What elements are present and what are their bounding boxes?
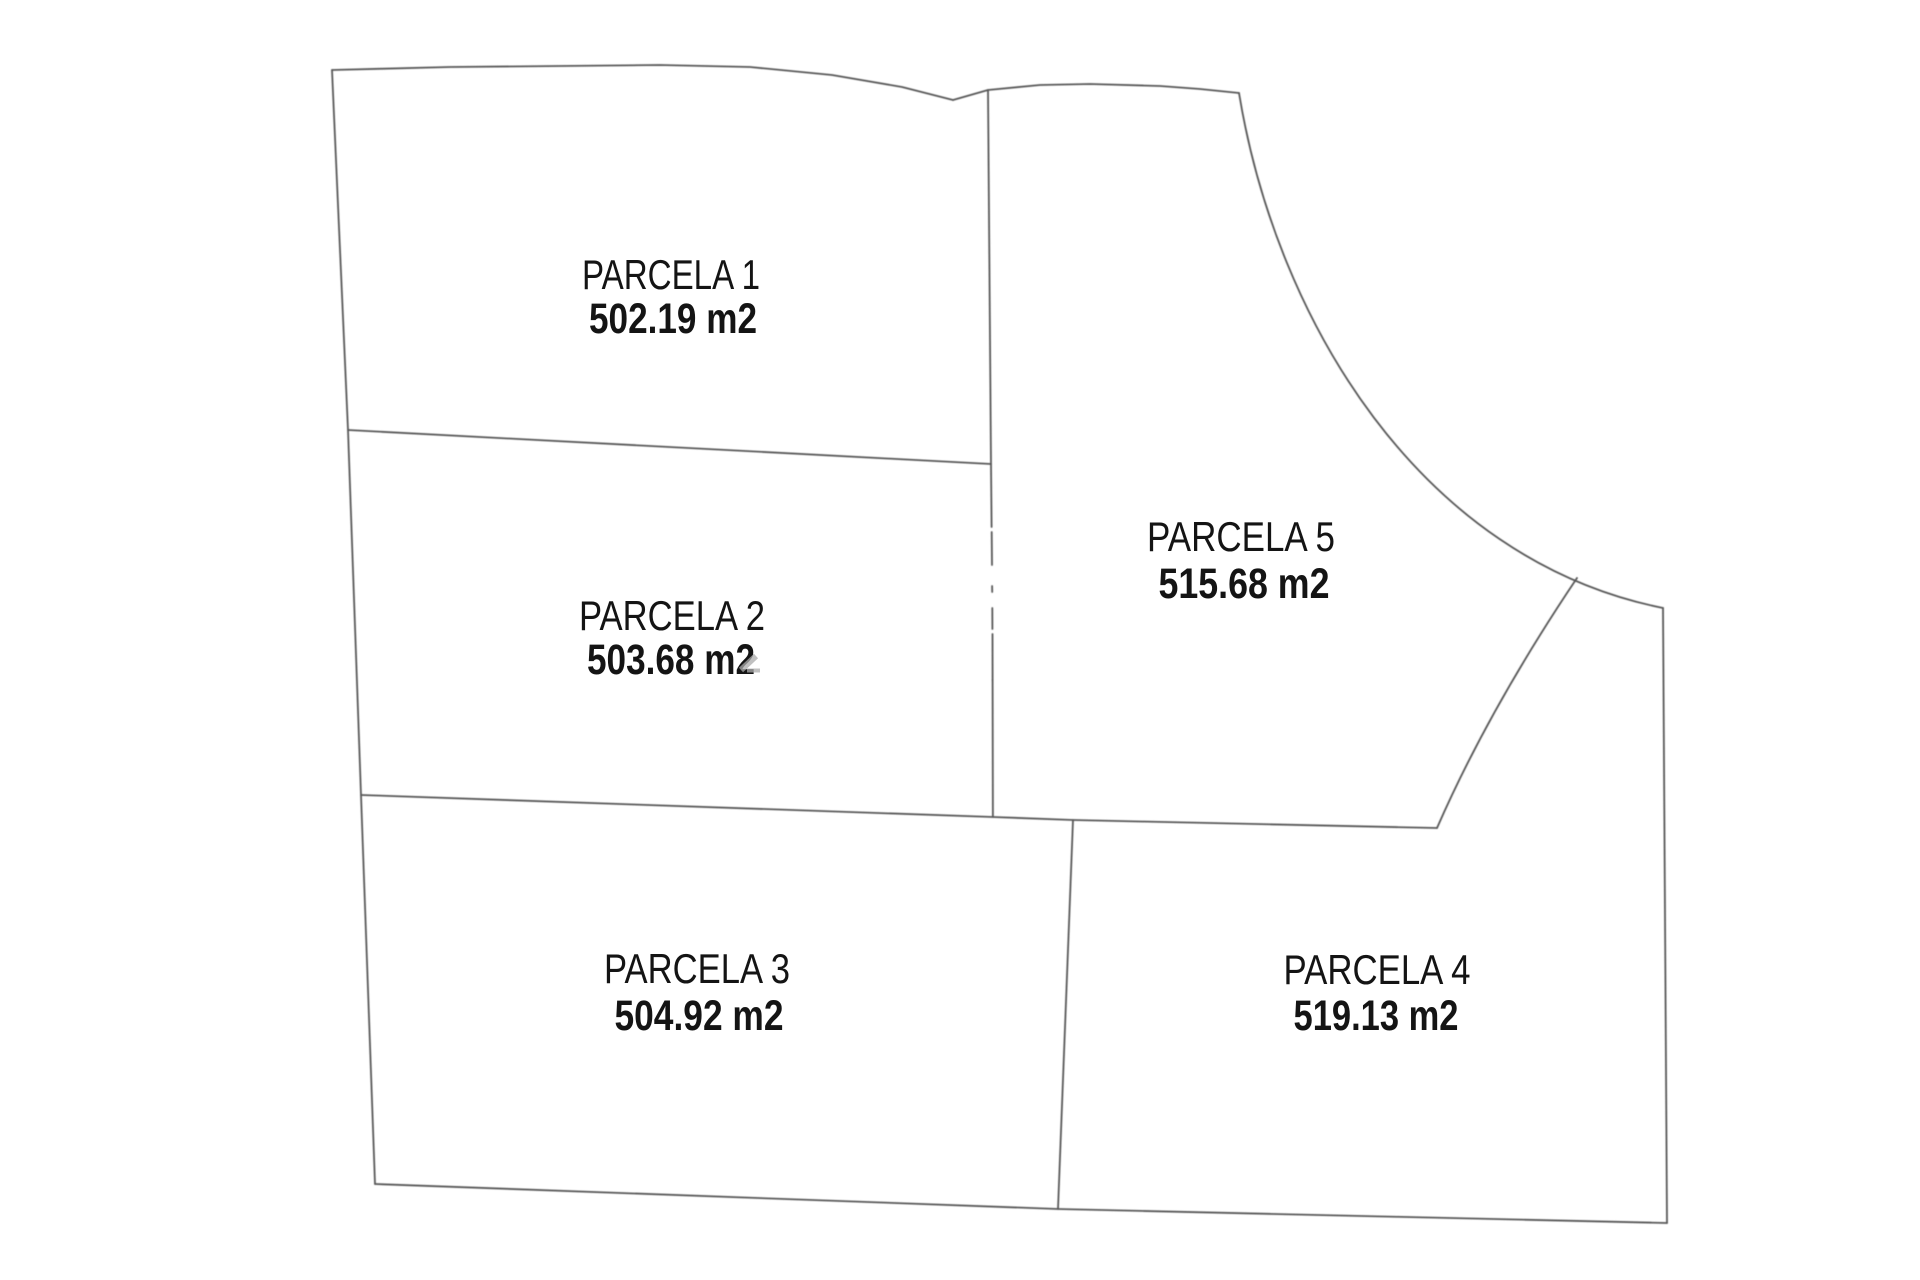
svg-text:PARCELA 1: PARCELA 1 (582, 251, 760, 298)
svg-text:503.68 m2: 503.68 m2 (587, 636, 755, 684)
svg-text:PARCELA 2: PARCELA 2 (579, 592, 765, 639)
svg-text:PARCELA 3: PARCELA 3 (604, 945, 790, 992)
svg-text:519.13 m2: 519.13 m2 (1294, 992, 1459, 1040)
svg-text:515.68 m2: 515.68 m2 (1159, 560, 1330, 608)
svg-text:504.92 m2: 504.92 m2 (615, 992, 784, 1040)
svg-text:502.19 m2: 502.19 m2 (589, 295, 757, 343)
svg-text:PARCELA 5: PARCELA 5 (1147, 513, 1335, 560)
svg-text:PARCELA 4: PARCELA 4 (1284, 946, 1471, 993)
